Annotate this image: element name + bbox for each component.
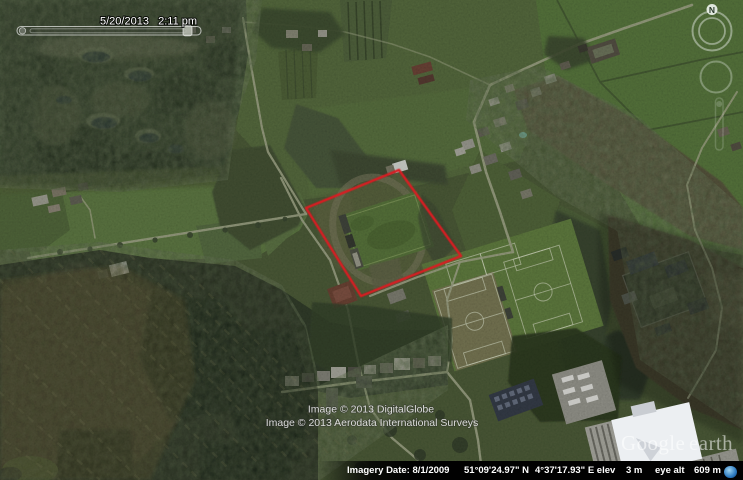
svg-text:Image © 2013 DigitalGlobe: Image © 2013 DigitalGlobe: [308, 404, 434, 416]
svg-text:Google: Google: [621, 431, 685, 455]
svg-text:N: N: [709, 5, 715, 15]
svg-text:5/20/2013 2:11 pm: 5/20/2013 2:11 pm: [100, 16, 197, 28]
svg-text:Image © 2013 Aerodata Internat: Image © 2013 Aerodata International Surv…: [266, 417, 479, 429]
svg-text:earth: earth: [689, 431, 733, 455]
